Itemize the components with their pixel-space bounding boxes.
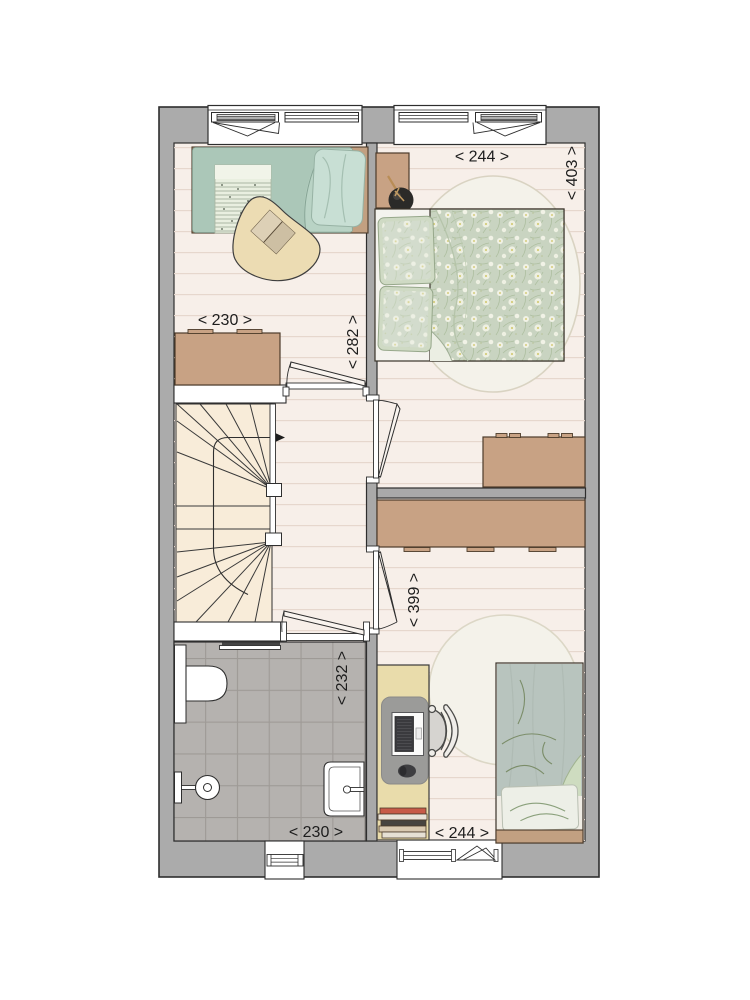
svg-text:< 230 >: < 230 > xyxy=(198,312,252,329)
svg-text:< 282 >: < 282 > xyxy=(345,315,362,369)
svg-text:< 244 >: < 244 > xyxy=(455,149,509,166)
svg-text:< 230 >: < 230 > xyxy=(289,824,343,841)
svg-text:< 232 >: < 232 > xyxy=(334,651,351,705)
svg-text:< 399 >: < 399 > xyxy=(406,573,423,627)
svg-text:< 244 >: < 244 > xyxy=(435,825,489,842)
svg-text:< 403 >: < 403 > xyxy=(564,146,581,200)
